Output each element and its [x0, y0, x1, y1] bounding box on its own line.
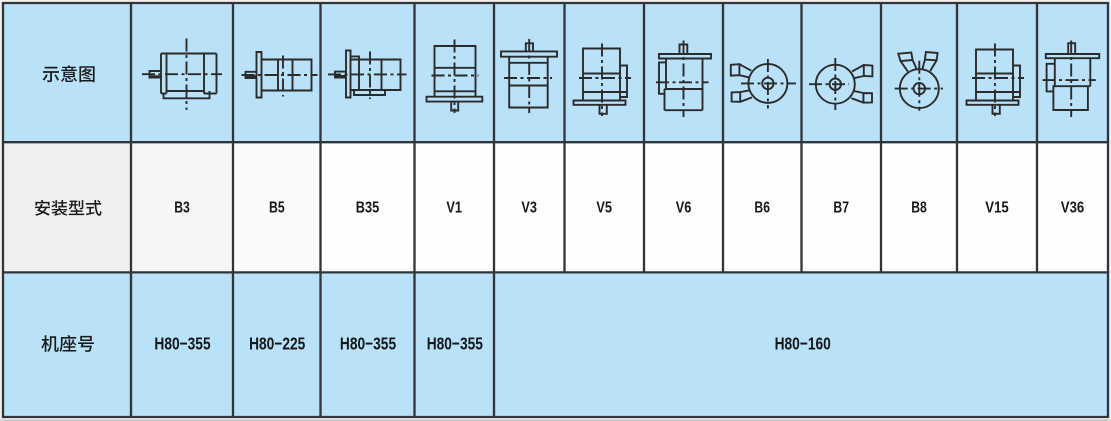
svg-text:B6: B6: [754, 199, 770, 216]
svg-text:V6: V6: [676, 199, 692, 216]
svg-text:V36: V36: [1061, 199, 1084, 216]
svg-text:V1: V1: [446, 199, 462, 216]
svg-text:H80−160: H80−160: [775, 334, 831, 354]
svg-text:H80−225: H80−225: [249, 334, 305, 354]
svg-text:H80−355: H80−355: [340, 334, 396, 354]
svg-text:B8: B8: [911, 199, 927, 216]
svg-text:H80−355: H80−355: [427, 334, 483, 354]
svg-text:V5: V5: [596, 199, 612, 216]
svg-text:B7: B7: [833, 199, 849, 216]
svg-text:B5: B5: [269, 199, 285, 216]
svg-text:V15: V15: [985, 199, 1008, 216]
svg-text:B35: B35: [356, 199, 379, 216]
svg-text:V3: V3: [521, 199, 537, 216]
svg-text:H80−355: H80−355: [154, 334, 210, 354]
svg-text:B3: B3: [174, 199, 190, 216]
